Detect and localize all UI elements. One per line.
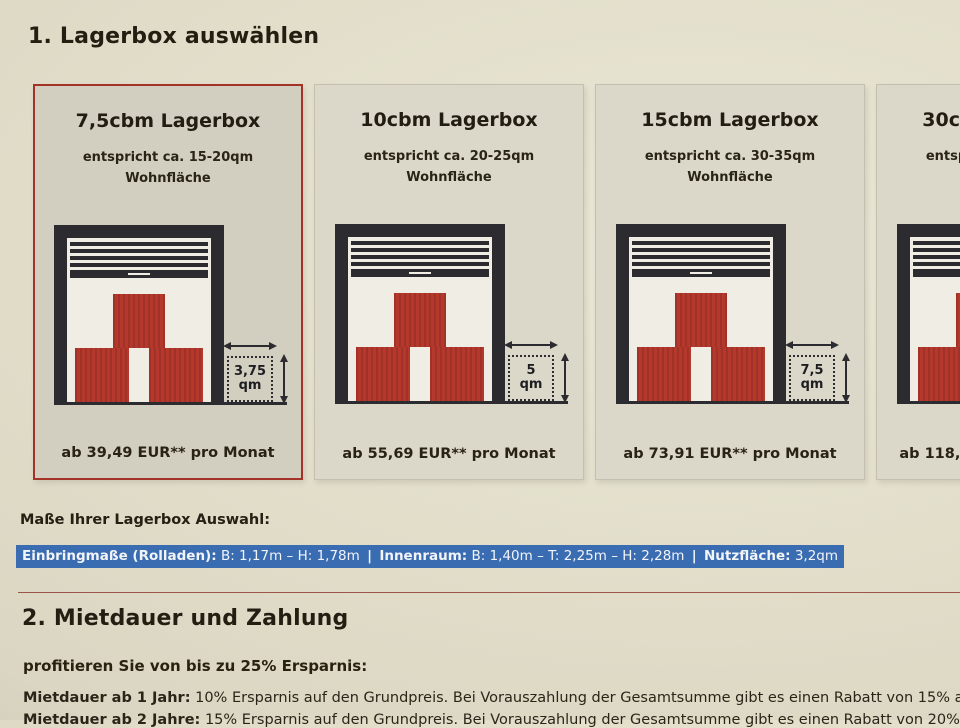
garage-door-icon: 5 qm — [330, 212, 568, 412]
qm-unit: qm — [520, 378, 543, 392]
red-box-icon — [75, 348, 129, 402]
section1-title: 1. Lagerbox auswählen — [28, 24, 319, 49]
door-handle — [409, 272, 431, 274]
innenraum-value: B: 1,40m – T: 2,25m – H: 2,28m — [471, 548, 684, 564]
card-subtitle: entspricht ca. 60-70qm Wohnfläche — [877, 146, 960, 189]
ground-line — [616, 401, 849, 404]
card-price: ab 55,69 EUR** pro Monat — [315, 446, 583, 462]
subtitle-line1: entspricht ca. 60-70qm — [926, 149, 960, 164]
garage-frame — [616, 224, 786, 401]
lagerbox-cards-row: 7,5cbm Lagerbox entspricht ca. 15-20qm W… — [33, 84, 960, 480]
ground-line — [54, 402, 287, 405]
roller-door-icon — [70, 242, 208, 278]
width-arrow-icon — [506, 344, 556, 346]
rental-term-2-text: 15% Ersparnis auf den Grundpreis. Bei Vo… — [205, 712, 960, 728]
subtitle-line2: Wohnfläche — [687, 170, 773, 185]
garage-frame — [335, 224, 505, 401]
card-price: ab 73,91 EUR** pro Monat — [596, 446, 864, 462]
red-box-icon — [637, 347, 691, 401]
measure-highlight-bar: Einbringmaße (Rolladen): B: 1,17m – H: 1… — [16, 545, 844, 568]
storage-booking-page: { "section1": { "title": "1. Lagerbox au… — [0, 0, 960, 720]
subtitle-line1: entspricht ca. 20-25qm — [364, 149, 534, 164]
rental-term-line-1: Mietdauer ab 1 Jahr: 10% Ersparnis auf d… — [23, 690, 960, 706]
qm-size-indicator: 7,5 qm — [789, 355, 835, 401]
height-arrow-icon — [564, 355, 566, 401]
qm-unit: qm — [801, 378, 824, 392]
rental-term-line-2: Mietdauer ab 2 Jahre: 15% Ersparnis auf … — [23, 712, 960, 728]
card-subtitle: entspricht ca. 15-20qm Wohnfläche — [35, 147, 301, 190]
qm-value: 7,5 — [800, 364, 823, 378]
garage-door-icon: 7,5 qm — [611, 212, 849, 412]
roller-door-icon — [913, 241, 960, 277]
card-title: 30cbm Lagerbox — [877, 109, 960, 131]
section-divider — [18, 592, 960, 593]
card-title: 10cbm Lagerbox — [315, 109, 583, 131]
roller-door-icon — [351, 241, 489, 277]
qm-value: 5 — [526, 364, 535, 378]
separator: | — [364, 548, 375, 564]
garage-frame — [54, 225, 224, 402]
card-price: ab 39,49 EUR** pro Monat — [35, 445, 301, 461]
red-box-icon — [711, 347, 765, 401]
nutzflaeche-label: Nutzfläche: — [704, 548, 791, 564]
card-subtitle: entspricht ca. 20-25qm Wohnfläche — [315, 146, 583, 189]
height-arrow-icon — [845, 355, 847, 401]
red-box-icon — [113, 294, 165, 348]
subtitle-line1: entspricht ca. 15-20qm — [83, 150, 253, 165]
einbringmasse-value: B: 1,17m – H: 1,78m — [221, 548, 360, 564]
separator: | — [689, 548, 700, 564]
ground-line — [335, 401, 568, 404]
subtitle-line2: Wohnfläche — [125, 171, 211, 186]
card-subtitle: entspricht ca. 30-35qm Wohnfläche — [596, 146, 864, 189]
measure-section-label: Maße Ihrer Lagerbox Auswahl: — [20, 512, 270, 528]
height-arrow-icon — [283, 356, 285, 402]
card-title: 7,5cbm Lagerbox — [35, 110, 301, 132]
lagerbox-card-15cbm[interactable]: 15cbm Lagerbox entspricht ca. 30-35qm Wo… — [595, 84, 865, 480]
garage-door-icon: 15 qm — [892, 212, 960, 412]
card-title: 15cbm Lagerbox — [596, 109, 864, 131]
qm-value: 3,75 — [234, 365, 266, 379]
red-box-icon — [394, 293, 446, 347]
einbringmasse-label: Einbringmaße (Rolladen): — [22, 548, 217, 564]
card-price: ab 118,46 EUR** pro Monat — [877, 446, 960, 462]
rental-term-1-text: 10% Ersparnis auf den Grundpreis. Bei Vo… — [195, 690, 960, 706]
garage-frame — [897, 224, 960, 401]
nutzflaeche-value: 3,2qm — [795, 548, 838, 564]
subtitle-line1: entspricht ca. 30-35qm — [645, 149, 815, 164]
qm-size-indicator: 5 qm — [508, 355, 554, 401]
lagerbox-card-30cbm[interactable]: 30cbm Lagerbox entspricht ca. 60-70qm Wo… — [876, 84, 960, 480]
red-box-icon — [675, 293, 727, 347]
red-box-icon — [356, 347, 410, 401]
lagerbox-card-7-5cbm[interactable]: 7,5cbm Lagerbox entspricht ca. 15-20qm W… — [33, 84, 303, 480]
roller-door-icon — [632, 241, 770, 277]
rental-term-1-label: Mietdauer ab 1 Jahr: — [23, 690, 191, 706]
garage-door-icon: 3,75 qm — [49, 213, 287, 413]
qm-unit: qm — [239, 379, 262, 393]
width-arrow-icon — [787, 344, 837, 346]
section2-intro: profitieren Sie von bis zu 25% Ersparnis… — [23, 657, 367, 675]
subtitle-line2: Wohnfläche — [406, 170, 492, 185]
red-box-icon — [956, 293, 960, 347]
qm-size-indicator: 3,75 qm — [227, 356, 273, 402]
ground-line — [897, 401, 960, 404]
lagerbox-card-10cbm[interactable]: 10cbm Lagerbox entspricht ca. 20-25qm Wo… — [314, 84, 584, 480]
red-box-icon — [430, 347, 484, 401]
red-box-icon — [149, 348, 203, 402]
red-box-icon — [918, 347, 960, 401]
width-arrow-icon — [225, 345, 275, 347]
door-handle — [690, 272, 712, 274]
door-handle — [128, 273, 150, 275]
rental-term-2-label: Mietdauer ab 2 Jahre: — [23, 712, 200, 728]
innenraum-label: Innenraum: — [379, 548, 467, 564]
section2-title: 2. Mietdauer und Zahlung — [22, 606, 349, 631]
